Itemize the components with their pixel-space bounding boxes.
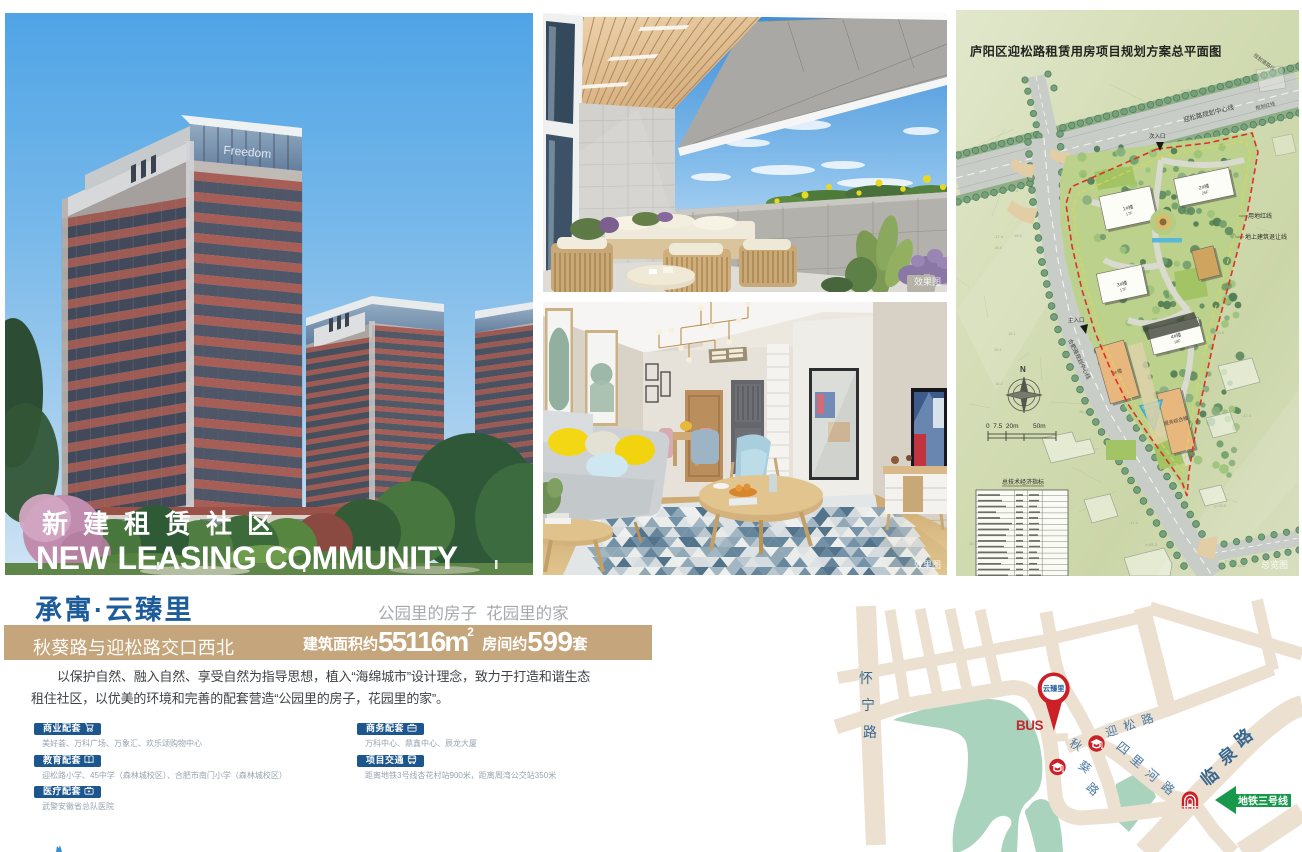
svg-text:路: 路 [863, 724, 877, 740]
svg-text:18.4: 18.4 [1079, 409, 1088, 414]
svg-text:BUS: BUS [1016, 718, 1043, 733]
svg-text:x=81.2: x=81.2 [1145, 542, 1158, 547]
svg-text:19.1: 19.1 [994, 347, 1003, 352]
svg-text:-17.4: -17.4 [994, 234, 1004, 239]
svg-text:地上建筑退让线: 地上建筑退让线 [1245, 233, 1287, 241]
svg-text:地铁三号线: 地铁三号线 [1238, 795, 1288, 808]
svg-text:18.4: 18.4 [1014, 233, 1023, 238]
svg-text:次入口: 次入口 [1149, 132, 1166, 140]
svg-text:总览图: 总览图 [1261, 559, 1288, 570]
svg-text:怀: 怀 [859, 670, 873, 686]
svg-text:主入口: 主入口 [1068, 316, 1085, 324]
svg-text:总技术经济指标: 总技术经济指标 [1002, 478, 1044, 486]
svg-text:效果图: 效果图 [914, 559, 941, 570]
svg-text:庐阳区迎松路租赁用房项目规划方案总平面图: 庐阳区迎松路租赁用房项目规划方案总平面图 [970, 44, 1222, 59]
svg-text:用地红线: 用地红线 [1248, 212, 1272, 220]
svg-text:新建租赁社区: 新建租赁社区 [42, 509, 288, 539]
svg-text:NEW LEASING COMMUNITY: NEW LEASING COMMUNITY [36, 540, 458, 575]
svg-text:-17.4: -17.4 [1242, 413, 1252, 418]
svg-text:-17.4: -17.4 [1129, 520, 1139, 525]
svg-text:0 7.5 20m 50m: 0 7.5 20m 50m [986, 423, 1046, 430]
svg-text:云臻里: 云臻里 [1043, 684, 1065, 693]
svg-text:18.4: 18.4 [994, 245, 1003, 250]
svg-text:效果图: 效果图 [914, 276, 941, 287]
svg-text:N: N [1020, 365, 1026, 374]
svg-text:宁: 宁 [861, 697, 875, 713]
svg-text:18.4: 18.4 [995, 381, 1004, 386]
svg-text:19.1: 19.1 [1008, 331, 1017, 336]
